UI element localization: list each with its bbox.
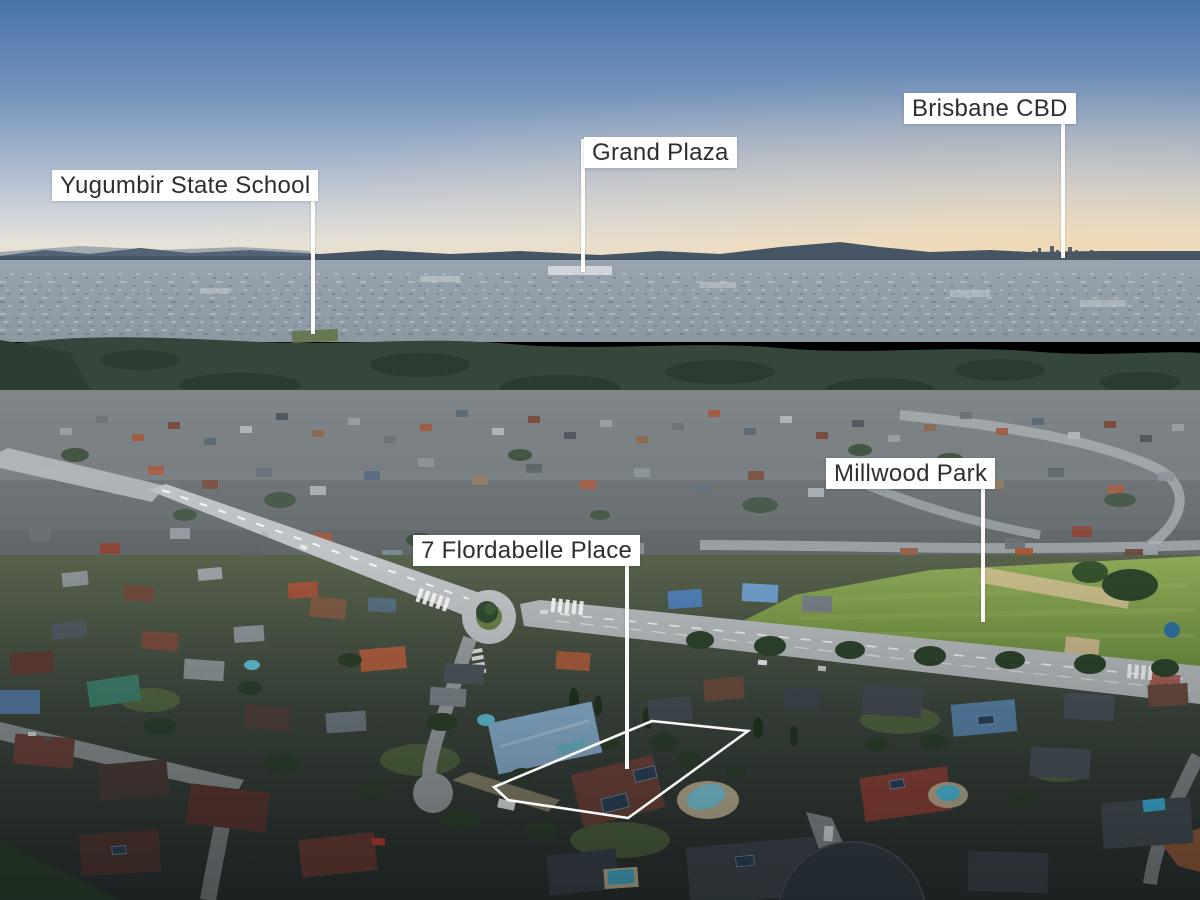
label-yugumbir-state-school: Yugumbir State School <box>52 170 318 201</box>
dusk-overlay <box>0 560 1200 900</box>
label-property-address: 7 Flordabelle Place <box>413 535 640 566</box>
aerial-photo-background <box>0 0 1200 900</box>
distant-suburbs <box>0 260 1200 342</box>
label-millwood-park: Millwood Park <box>826 458 995 489</box>
label-grand-plaza: Grand Plaza <box>584 137 737 168</box>
leader-line-property <box>625 563 629 769</box>
sky <box>0 0 1200 270</box>
leader-line-yugumbir <box>311 197 315 334</box>
aerial-photo: Yugumbir State School Grand Plaza Brisba… <box>0 0 1200 900</box>
label-brisbane-cbd: Brisbane CBD <box>904 93 1076 124</box>
